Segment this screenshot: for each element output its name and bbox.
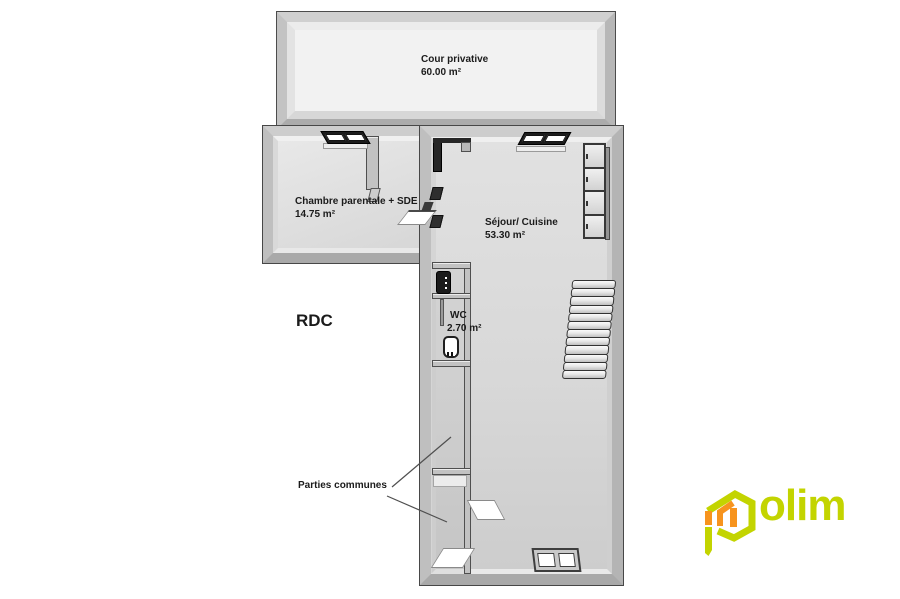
window-icon: [518, 132, 572, 145]
window-pane: [325, 134, 346, 141]
room-name: Chambre parentale + SDE: [295, 196, 418, 207]
living-label: Séjour/ Cuisine 53.30 m²: [485, 216, 558, 242]
door-icon: [433, 139, 442, 172]
cabinet-unit: [585, 169, 604, 193]
polim-logo: olim: [700, 486, 845, 560]
cabinet-unit: [585, 216, 604, 238]
toilet-icon: [443, 336, 459, 358]
room-area: 14.75 m²: [295, 208, 418, 221]
window-pane: [345, 134, 366, 141]
room-area: 2.70 m²: [447, 322, 481, 335]
room-area: 60.00 m²: [421, 66, 488, 79]
stair-step: [562, 370, 607, 379]
corridor-partition: [432, 468, 471, 475]
floor-plan-canvas: Cour privative 60.00 m²: [0, 0, 900, 599]
wc-wall-bottom: [432, 360, 471, 367]
wc-wall-top: [432, 262, 471, 269]
kitchen-cabinets-icon: [583, 143, 606, 239]
room-name: WC: [450, 310, 467, 321]
wc-label: WC 2.70 m²: [447, 309, 481, 335]
floor-label: RDC: [296, 311, 333, 331]
room-name: Cour privative: [421, 54, 488, 65]
window-pane: [544, 135, 567, 142]
window-pane: [558, 553, 576, 567]
polim-house-icon: [700, 486, 758, 560]
cabinet-unit: [585, 145, 604, 169]
room-area: 53.30 m²: [485, 229, 558, 242]
door-icon: [440, 299, 444, 326]
window-icon: [532, 548, 582, 572]
window-sill: [516, 146, 566, 152]
bedroom-label: Chambre parentale + SDE 14.75 m²: [295, 195, 418, 221]
courtyard-label: Cour privative 60.00 m²: [421, 53, 488, 79]
polim-logo-text: olim: [759, 484, 845, 528]
window-pane: [522, 135, 545, 142]
toilet-base: [447, 352, 455, 356]
door-jamb: [461, 142, 471, 152]
common-areas-label: Parties communes: [298, 479, 387, 492]
cabinet-unit: [585, 192, 604, 216]
corridor-shelf: [433, 475, 467, 487]
window-icon: [320, 131, 371, 144]
water-heater-icon: [436, 271, 451, 294]
window-pane: [537, 553, 555, 567]
room-name: Séjour/ Cuisine: [485, 217, 558, 228]
